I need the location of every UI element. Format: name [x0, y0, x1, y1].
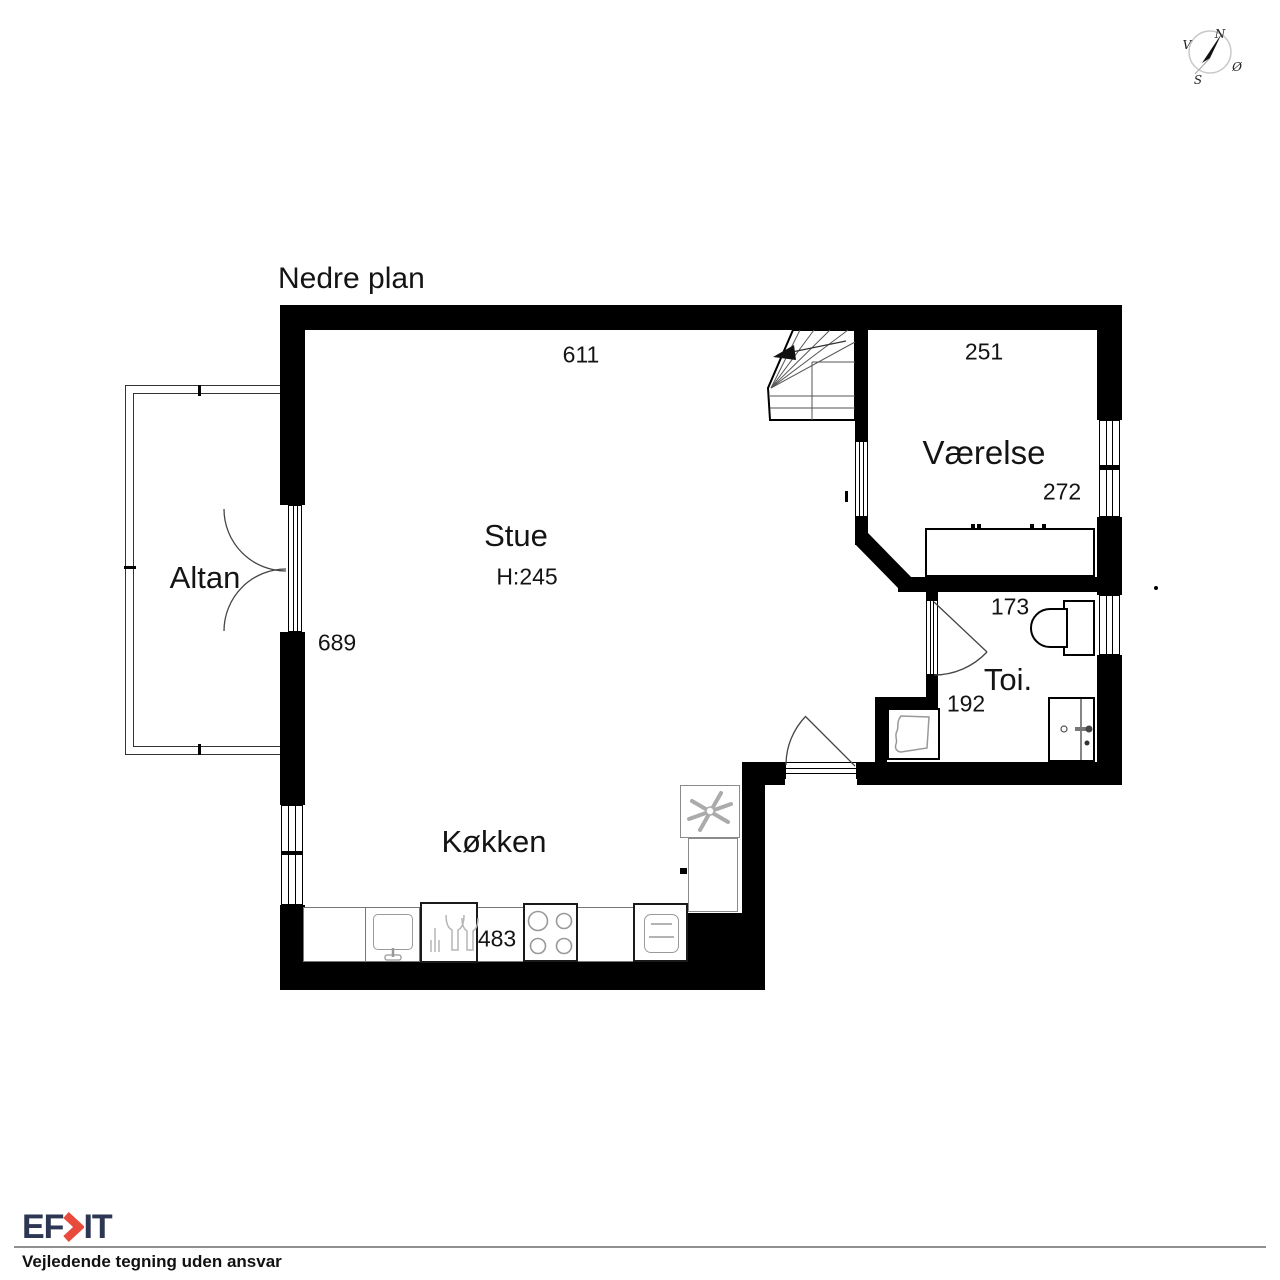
- room-label-altan: Altan: [170, 560, 241, 596]
- wall-stairs-vaerelse: [855, 330, 868, 441]
- cabinet-handle-tick: [680, 868, 687, 874]
- wall-partition-lower: [855, 517, 868, 545]
- plan-title: Nedre plan: [278, 262, 425, 296]
- window-toi-right: [1099, 595, 1120, 655]
- wall-bottom-right-b: [857, 762, 1122, 785]
- toilet-bowl: [1030, 608, 1068, 648]
- compass-icon: N V S Ø: [1180, 20, 1250, 90]
- garden-door-threshold: [785, 762, 857, 779]
- window-mullion: [1099, 465, 1120, 470]
- ceiling-height-stue: H:245: [496, 564, 557, 591]
- dim-toi-depth: 192: [947, 691, 985, 718]
- kitchen-sink: [373, 914, 413, 950]
- wall-kitchen-right: [742, 762, 765, 913]
- wardrobe-hook: [1030, 524, 1034, 529]
- wardrobe-hook: [971, 524, 975, 529]
- compass-south: S: [1194, 73, 1202, 87]
- garden-door-opening: [785, 779, 857, 785]
- wall-right-mid: [1097, 517, 1122, 595]
- wardrobe-hook: [1042, 524, 1046, 529]
- floor-plan-page: Nedre plan: [0, 0, 1280, 1280]
- washbasin-cabinet: [887, 708, 940, 760]
- dim-stue-width: 611: [563, 342, 600, 369]
- garden-door-swing: [786, 716, 855, 766]
- wall-right-lower: [1097, 655, 1122, 762]
- logo-text-right: IT: [83, 1210, 111, 1244]
- balcony-wall-tick: [198, 385, 201, 396]
- stove: [523, 903, 578, 962]
- logo-text-left: EF: [22, 1210, 63, 1244]
- ventilation-unit: [680, 785, 740, 838]
- wall-bottom-right-a: [765, 762, 785, 785]
- balcony-wall-tick: [124, 566, 136, 569]
- wall-alcove-top: [875, 697, 938, 708]
- wall-under-wardrobe: [898, 577, 1097, 592]
- room-label-toi: Toi.: [984, 662, 1032, 698]
- dim-koekken-width: 483: [478, 926, 516, 953]
- dishwasher: [420, 902, 478, 963]
- toi-door-swing: [934, 602, 987, 675]
- compass-west: V: [1183, 38, 1193, 52]
- wall-left-mid: [280, 632, 305, 805]
- kitchen-tall-cabinet: [688, 838, 738, 912]
- stair-direction-arrow: [773, 341, 846, 360]
- window-mullion: [281, 851, 303, 855]
- wall-toi-left-upper: [926, 592, 938, 600]
- compass-rose: N V S Ø: [1180, 20, 1250, 90]
- company-logo: EF IT: [22, 1210, 112, 1244]
- footer-disclaimer: Vejledende tegning uden ansvar: [22, 1252, 282, 1272]
- footer-divider: [14, 1246, 1266, 1248]
- dim-vaerelse-depth: 272: [1043, 479, 1081, 506]
- wardrobe-hook: [977, 524, 981, 529]
- balcony-door-frame: [288, 505, 302, 632]
- room-label-stue: Stue: [484, 518, 548, 554]
- staircase: [768, 330, 855, 420]
- wardrobe: [925, 528, 1095, 577]
- dim-toi-width: 173: [991, 594, 1029, 621]
- window-kitchen-left: [281, 805, 303, 905]
- wall-right-upper: [1097, 330, 1122, 420]
- toi-door-frame: [926, 600, 938, 675]
- wall-kitchen-corner: [687, 913, 765, 962]
- oven-door-icon: [644, 914, 679, 953]
- stair-treads: [770, 330, 855, 420]
- wall-top: [280, 305, 1122, 330]
- stray-dot: [1154, 586, 1158, 590]
- wall-alcove-left: [875, 708, 887, 762]
- compass-east: Ø: [1231, 60, 1243, 74]
- wall-bottom-kitchen: [280, 962, 765, 990]
- door-stop-mark: [845, 491, 848, 502]
- glazed-partition-vaerelse: [855, 441, 868, 517]
- entry-door: [1048, 697, 1095, 762]
- dim-stue-depth: 689: [318, 630, 356, 657]
- balcony-wall-tick: [198, 744, 201, 755]
- compass-north: N: [1214, 27, 1226, 41]
- room-label-koekken: Køkken: [441, 824, 546, 860]
- wall-toi-left-lower: [926, 675, 938, 697]
- dim-vaerelse-width: 251: [965, 339, 1003, 366]
- room-label-vaerelse: Værelse: [923, 434, 1046, 472]
- logo-chevron-icon: [62, 1212, 84, 1242]
- wall-left-upper: [280, 330, 305, 505]
